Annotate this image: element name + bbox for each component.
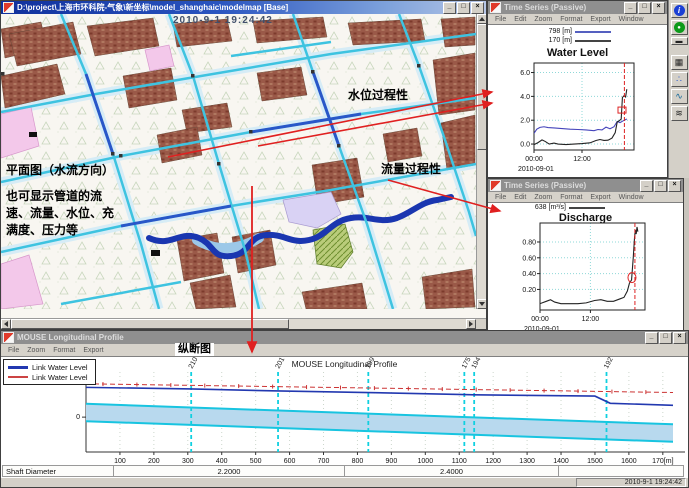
discharge-legend: 638 [m³/s]: [518, 203, 605, 212]
minimize-button[interactable]: _: [645, 332, 658, 344]
menu-item-export[interactable]: Export: [586, 194, 614, 201]
line-plot-icon[interactable]: ∿: [671, 89, 688, 104]
svg-text:200: 200: [148, 458, 160, 465]
svg-text:00:00: 00:00: [525, 156, 543, 163]
water-level-legend: 798 [m] 170 [m]: [524, 27, 611, 45]
play-icon[interactable]: ●: [671, 20, 688, 35]
menu-item-export[interactable]: Export: [586, 16, 614, 23]
svg-text:1200: 1200: [485, 458, 501, 465]
legend-line-swatch: [569, 207, 605, 209]
scroll-down-icon: [479, 302, 485, 306]
svg-text:500: 500: [250, 458, 262, 465]
annotation-plan-view: 平面图（水流方向）: [6, 162, 114, 179]
vscroll-track[interactable]: [477, 150, 486, 299]
minimize-button[interactable]: _: [624, 2, 637, 14]
close-button[interactable]: ×: [673, 332, 686, 344]
scatter-icon-glyph: ∴: [676, 74, 682, 85]
svg-text:6.0: 6.0: [520, 70, 530, 77]
menu-item-window[interactable]: Window: [615, 194, 648, 201]
right-toolbar: i ● ▬ ▦ ∴ ∿ ≋: [668, 0, 689, 178]
timeseries-app-icon: [490, 2, 501, 13]
grid-icon-glyph: ▦: [675, 57, 684, 68]
menu-item-edit[interactable]: Edit: [510, 16, 530, 23]
svg-text:2010-09-01: 2010-09-01: [518, 166, 554, 173]
layers-icon-glyph: ≋: [675, 108, 683, 119]
water-level-titlebar[interactable]: Time Series (Passive) _ □ ×: [488, 1, 667, 14]
play-icon-glyph: ●: [674, 22, 685, 33]
layers-icon[interactable]: ≋: [671, 106, 688, 121]
svg-text:1000: 1000: [418, 458, 434, 465]
map-hscrollbar[interactable]: [1, 318, 486, 329]
shaft-diameter-value: 2.2000: [113, 465, 345, 477]
water-level-chart-title: Water Level: [488, 47, 667, 59]
svg-text:0.20: 0.20: [522, 287, 536, 294]
map-timestamp: 2010-9-1 19:24:42: [173, 15, 273, 26]
app-icon: [3, 2, 14, 13]
menu-item-zoom[interactable]: Zoom: [530, 16, 556, 23]
menu-item-edit[interactable]: Edit: [510, 194, 530, 201]
close-button[interactable]: ×: [652, 2, 665, 14]
svg-text:300: 300: [182, 458, 194, 465]
svg-text:1100: 1100: [452, 458, 467, 465]
svg-text:900: 900: [386, 458, 398, 465]
shaft-diameter-value: 2.4000: [344, 465, 559, 477]
info-icon-glyph: i: [674, 5, 685, 16]
menu-item-format[interactable]: Format: [49, 347, 79, 354]
profile-chart-area: Link Water Level Link Water Level MOUSE …: [1, 356, 688, 478]
map-canvas-area: 2010-9-1 19:24:42 平面图（水流方向） 也可显示管道的流速、流量…: [1, 14, 486, 320]
profile-titlebar[interactable]: MOUSE Longitudinal Profile _ □ ×: [1, 331, 688, 344]
legend-label: 798 [m]: [524, 28, 575, 35]
menu-item-file[interactable]: File: [491, 16, 510, 23]
minimize-button[interactable]: _: [443, 2, 456, 14]
legend-row: Link Water Level: [8, 362, 91, 372]
legend-line-swatch: [575, 31, 611, 33]
legend-line-swatch: [8, 366, 28, 369]
water-level-window-title: Time Series (Passive): [504, 3, 621, 12]
annotation-water-level-hydrograph: 水位过程性: [348, 87, 408, 104]
svg-text:12:00: 12:00: [582, 316, 600, 323]
close-button[interactable]: ×: [668, 180, 681, 192]
svg-text:600: 600: [284, 458, 296, 465]
maximize-button[interactable]: □: [659, 332, 672, 344]
discharge-titlebar[interactable]: Time Series (Passive) _ □ ×: [488, 179, 683, 192]
annotation-discharge-hydrograph: 流量过程性: [381, 161, 441, 178]
water-level-chart-area: 798 [m] 170 [m] Water Level 0.02.04.06.0…: [488, 24, 667, 177]
scroll-left-button[interactable]: [1, 319, 11, 329]
legend-line-swatch: [8, 376, 28, 378]
svg-text:0: 0: [76, 414, 80, 421]
svg-text:1400: 1400: [553, 458, 569, 465]
map-window: D:\project\上海市环科院-气象\新坐标\model_shanghaic…: [0, 0, 487, 330]
scroll-right-icon: [469, 321, 473, 327]
legend-row: 638 [m³/s]: [518, 203, 605, 212]
discharge-chart-area: 638 [m³/s] Discharge 0.200.400.600.8000:…: [488, 202, 683, 334]
svg-text:1300: 1300: [519, 458, 535, 465]
svg-text:400: 400: [216, 458, 228, 465]
menu-item-window[interactable]: Window: [615, 16, 648, 23]
scroll-left-icon: [4, 321, 8, 327]
svg-text:1600: 1600: [621, 458, 637, 465]
svg-text:700: 700: [318, 458, 330, 465]
svg-text:0.60: 0.60: [522, 255, 536, 262]
shaft-table-header: Shaft Diameter: [2, 465, 114, 477]
grid-view-icon[interactable]: ▦: [671, 55, 688, 70]
water-level-window: Time Series (Passive) _ □ × File Edit Zo…: [487, 0, 668, 178]
scroll-up-icon: [479, 17, 485, 21]
svg-text:4.0: 4.0: [520, 94, 530, 101]
legend-label: 170 [m]: [524, 37, 575, 44]
timeseries-app-icon: [490, 180, 501, 191]
profile-statusbar: 2010-9-1 19:24:42: [1, 477, 688, 487]
svg-text:800: 800: [352, 458, 364, 465]
profile-legend: Link Water Level Link Water Level: [3, 359, 96, 385]
hscroll-thumb[interactable]: [11, 319, 289, 329]
menu-item-export[interactable]: Export: [79, 347, 107, 354]
profile-app-icon: [3, 332, 14, 343]
discharge-window: Time Series (Passive) _ □ × File Edit Zo…: [487, 178, 684, 335]
menu-item-file[interactable]: File: [491, 194, 510, 201]
profile-window: MOUSE Longitudinal Profile _ □ × File Zo…: [0, 330, 689, 488]
dash-icon-glyph: ▬: [676, 38, 683, 45]
discharge-chart: 0.200.400.600.8000:0012:002010-09-01: [514, 219, 664, 335]
menu-item-zoom[interactable]: Zoom: [530, 194, 556, 201]
minimize-dash-icon[interactable]: ▬: [671, 37, 688, 45]
legend-label: Link Water Level: [28, 373, 91, 382]
maximize-button[interactable]: □: [457, 2, 470, 14]
scatter-plot-icon[interactable]: ∴: [671, 72, 688, 87]
annotation-profile-view: 纵断图: [175, 343, 214, 356]
map-title: D:\project\上海市环科院-气象\新坐标\model_shanghaic…: [17, 2, 440, 13]
maximize-button[interactable]: □: [638, 2, 651, 14]
profile-chart: 1002003004005006007008009001000110012001…: [1, 357, 688, 465]
legend-label: Link Water Level: [28, 363, 91, 372]
legend-row: 170 [m]: [524, 36, 611, 45]
scrollbar-corner: [476, 319, 486, 329]
water-level-chart: 0.02.04.06.000:0012:002010-09-01: [512, 59, 647, 177]
svg-text:170[m]: 170[m]: [652, 458, 673, 465]
profile-window-title: MOUSE Longitudinal Profile: [17, 333, 642, 342]
map-titlebar[interactable]: D:\project\上海市环科院-气象\新坐标\model_shanghaic…: [1, 1, 486, 14]
menu-item-zoom[interactable]: Zoom: [23, 347, 49, 354]
scroll-up-button[interactable]: [477, 14, 486, 24]
status-timestamp: 2010-9-1 19:24:42: [576, 478, 686, 487]
svg-text:0.40: 0.40: [522, 271, 536, 278]
svg-text:1500: 1500: [587, 458, 603, 465]
svg-text:0.0: 0.0: [520, 142, 530, 149]
line-plot-icon-glyph: ∿: [675, 91, 683, 102]
menu-item-format[interactable]: Format: [556, 194, 586, 201]
desktop: D:\project\上海市环科院-气象\新坐标\model_shanghaic…: [0, 0, 689, 488]
legend-label: 638 [m³/s]: [518, 204, 569, 211]
scroll-right-button[interactable]: [466, 319, 476, 329]
svg-text:2.0: 2.0: [520, 118, 530, 125]
svg-text:100: 100: [114, 458, 126, 465]
close-button[interactable]: ×: [471, 2, 484, 14]
shaft-table-empty-cell: [558, 465, 684, 477]
shaft-diameter-table: Shaft Diameter 2.2000 2.4000: [3, 465, 684, 477]
scroll-down-button[interactable]: [477, 299, 486, 309]
svg-text:00:00: 00:00: [531, 316, 549, 323]
minimize-button[interactable]: _: [640, 180, 653, 192]
legend-row: Link Water Level: [8, 372, 91, 382]
discharge-window-title: Time Series (Passive): [504, 181, 637, 190]
legend-row: 798 [m]: [524, 27, 611, 36]
maximize-button[interactable]: □: [654, 180, 667, 192]
hscroll-track[interactable]: [289, 319, 466, 329]
legend-line-swatch: [575, 40, 611, 42]
info-icon[interactable]: i: [671, 3, 688, 18]
menu-item-file[interactable]: File: [4, 347, 23, 354]
profile-chart-title: MOUSE Longitudinal Profile: [1, 359, 688, 369]
annotation-plan-note: 也可显示管道的流速、流量、水位、充满度、压力等: [6, 188, 118, 239]
svg-text:0.80: 0.80: [522, 239, 536, 246]
svg-text:12:00: 12:00: [573, 156, 591, 163]
map-vscrollbar[interactable]: [476, 14, 486, 309]
menu-item-format[interactable]: Format: [556, 16, 586, 23]
vscroll-thumb[interactable]: [477, 24, 486, 150]
